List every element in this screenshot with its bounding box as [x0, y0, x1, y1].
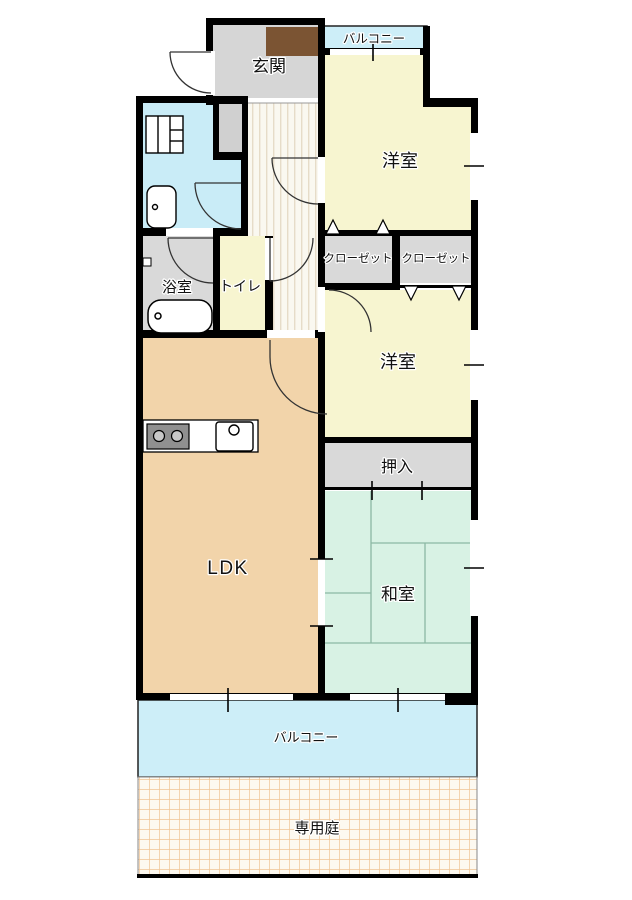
doorway-western-mid: [318, 287, 325, 332]
label-genkan: 玄関: [252, 57, 286, 76]
garden-bottom-edge: [137, 874, 478, 878]
kitchen-counter: [143, 420, 258, 452]
hallway-upper: [248, 103, 318, 236]
entrance-doorway: [205, 51, 215, 95]
entrance-door-swing: [170, 52, 211, 93]
label-toilet: トイレ: [219, 278, 261, 294]
label-balcony-bottom: バルコニー: [274, 730, 339, 745]
window-ldk-bottom: [170, 694, 293, 700]
bathtub-icon: [148, 300, 212, 333]
floor-plan-canvas: 玄関 バルコニー 洋室 クローゼット クローゼット 浴室 トイレ 洋室 押入 L…: [0, 0, 632, 900]
toilet-bowl-icon: [147, 186, 176, 228]
label-oshiire: 押入: [381, 458, 413, 476]
shoe-cabinet: [266, 27, 318, 56]
window-balcony-top: [330, 49, 420, 55]
label-balcony-top: バルコニー: [343, 32, 405, 46]
doorway-western-top: [318, 157, 325, 203]
label-ldk: LDK: [207, 558, 248, 579]
entry-niche: [219, 104, 242, 152]
doorway-bathroom: [166, 228, 213, 236]
doorway-ldk: [267, 330, 315, 338]
label-closet-left: クローゼット: [324, 252, 393, 265]
room-western-top: [325, 55, 471, 230]
doorway-toilet: [265, 238, 273, 280]
label-closet-right: クローゼット: [402, 252, 471, 265]
label-western-top: 洋室: [382, 151, 418, 171]
room-ldk: [143, 338, 318, 693]
washbasin-icon: [146, 116, 183, 153]
stove-icon: [147, 424, 189, 449]
label-bathroom: 浴室: [162, 279, 192, 296]
slider-ldk-washitsu: [318, 559, 325, 626]
bath-vent-icon: [143, 258, 151, 266]
floor-plan: 玄関 バルコニー 洋室 クローゼット クローゼット 浴室 トイレ 洋室 押入 L…: [0, 0, 632, 900]
label-japanese-room: 和室: [381, 585, 415, 604]
sink-icon: [216, 422, 253, 451]
label-garden: 専用庭: [294, 820, 339, 837]
label-western-mid: 洋室: [380, 352, 416, 372]
